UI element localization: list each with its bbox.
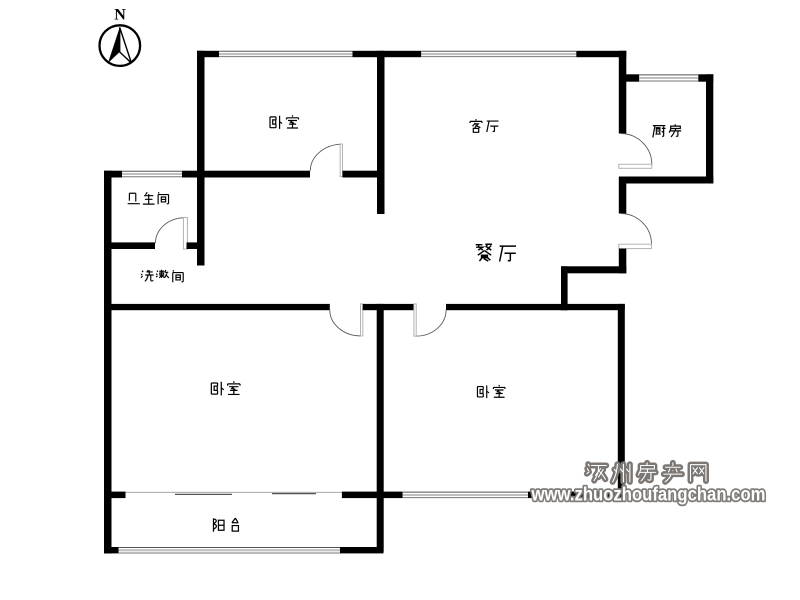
svg-text:www.zhuozhoufangchan.com: www.zhuozhoufangchan.com [531,484,766,505]
svg-text:N: N [114,7,126,24]
